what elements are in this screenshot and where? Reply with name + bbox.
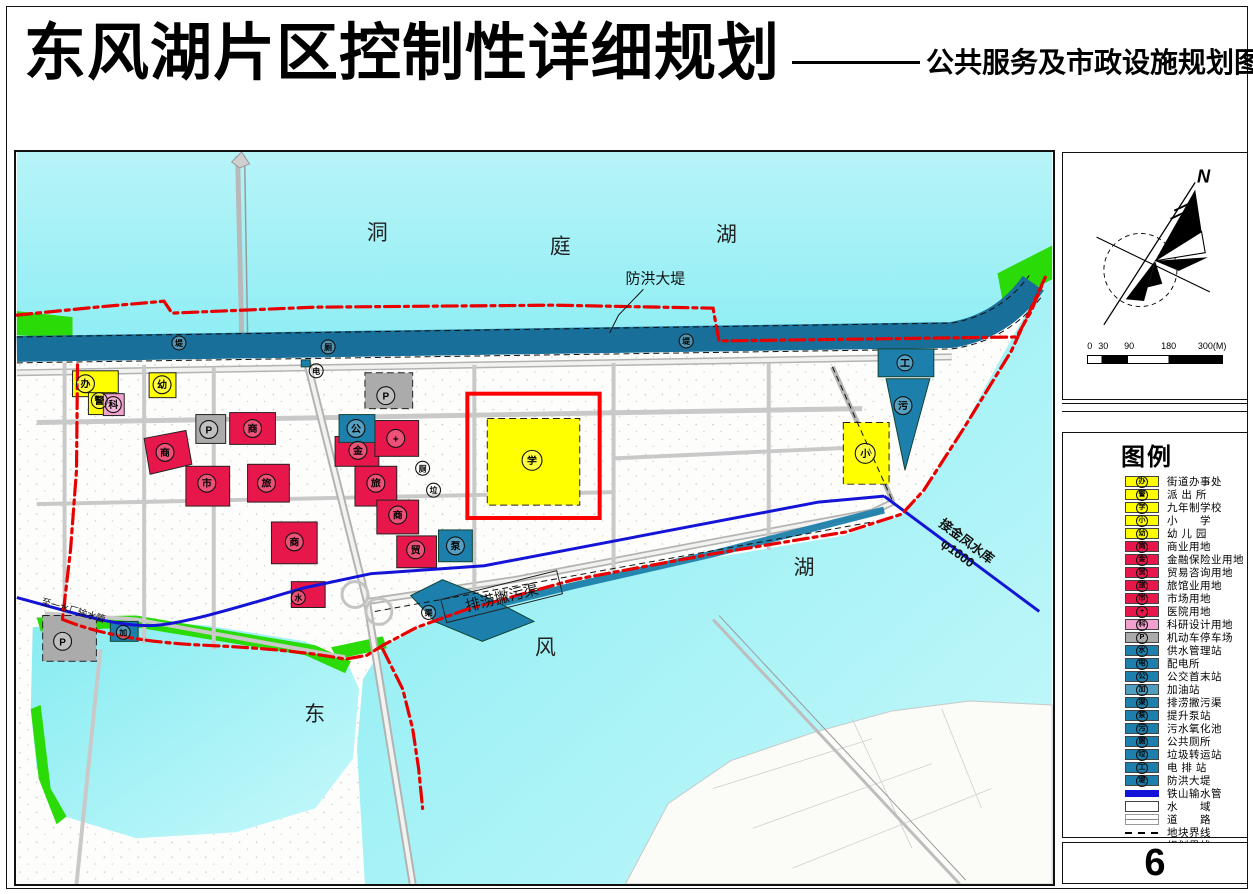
- legend-swatch: 办: [1125, 476, 1159, 487]
- commercial-symbol: 商: [285, 533, 303, 551]
- legend-swatch: P: [1125, 632, 1159, 643]
- legend-symbol-glyph: P: [1136, 632, 1148, 644]
- map-canvas: 办 警 科 幼 P 商 商 市 旅 商 P 公 金 + 旅 厕 垃 商 贸 泵 …: [14, 150, 1055, 886]
- svg-text:湖: 湖: [794, 557, 815, 580]
- water-supply-symbol: 水: [291, 591, 305, 605]
- legend-swatch: 小: [1125, 515, 1159, 526]
- scale-bar-graphic: [1087, 355, 1223, 364]
- research-symbol: 科: [105, 397, 121, 413]
- compass-box: N 0 30 90 180 300(M): [1062, 152, 1248, 400]
- gas-station-symbol: 加: [116, 625, 130, 639]
- street-office-symbol: 办: [77, 375, 95, 393]
- dike-symbol: 堤: [679, 334, 693, 348]
- svg-text:泵: 泵: [450, 540, 460, 552]
- page-number-box: 6: [1062, 842, 1248, 884]
- legend-swatch: 旅: [1125, 580, 1159, 591]
- legend-symbol-glyph: 公: [1136, 671, 1148, 683]
- scale-bar: 0 30 90 180 300(M): [1087, 341, 1223, 375]
- commercial-symbol: 商: [156, 443, 174, 461]
- legend-symbol-glyph: 小: [1136, 515, 1148, 527]
- svg-text:堤: 堤: [175, 338, 184, 348]
- svg-text:学: 学: [527, 454, 537, 467]
- legend-swatch: 贸: [1125, 567, 1159, 578]
- svg-text:P: P: [59, 637, 66, 648]
- legend-swatch: [1125, 814, 1159, 825]
- legend-swatch: 幼: [1125, 528, 1159, 539]
- svg-text:P: P: [382, 392, 389, 403]
- legend-symbol-glyph: 办: [1136, 476, 1148, 488]
- svg-text:电: 电: [312, 366, 320, 376]
- svg-text:商: 商: [160, 446, 170, 459]
- page-subtitle: 公共服务及市政设施规划图: [926, 41, 1253, 81]
- legend-swatch: 公: [1125, 671, 1159, 682]
- legend-swatch: [1125, 788, 1159, 799]
- legend-symbol-glyph: 学: [1136, 502, 1148, 514]
- svg-text:办: 办: [80, 377, 90, 390]
- title-dash-rule: [792, 61, 920, 64]
- legend-swatch: 电: [1125, 658, 1159, 669]
- legend-symbol-glyph: 工: [1136, 762, 1148, 774]
- nine-year-school-symbol: 学: [522, 450, 542, 470]
- svg-text:商: 商: [248, 422, 258, 435]
- svg-text:水: 水: [294, 593, 303, 603]
- legend-swatch: 水: [1125, 645, 1159, 656]
- scale-ticks: 0 30 90 180 300(M): [1087, 341, 1223, 353]
- legend-symbol-glyph: 厕: [1136, 736, 1148, 748]
- svg-text:垃: 垃: [430, 485, 438, 495]
- channel-symbol: 渠: [422, 606, 436, 620]
- legend-swatch: 金: [1125, 554, 1159, 565]
- legend-symbol-glyph: 市: [1136, 593, 1148, 605]
- dike-symbol: 堤: [172, 336, 186, 350]
- svg-text:厕: 厕: [324, 343, 332, 352]
- finance-symbol: 金: [349, 441, 367, 459]
- legend-swatch: 厕: [1125, 736, 1159, 747]
- legend-title: 图例: [1121, 437, 1247, 472]
- legend-swatch: +: [1125, 606, 1159, 617]
- svg-text:污: 污: [898, 399, 908, 412]
- svg-text:工: 工: [900, 358, 910, 369]
- toilet-symbol: 厕: [321, 340, 335, 354]
- legend-symbol-glyph: 科: [1136, 619, 1148, 631]
- legend-swatch: 科: [1125, 619, 1159, 630]
- svg-text:小: 小: [859, 447, 870, 460]
- svg-text:堤: 堤: [682, 336, 691, 346]
- commercial-symbol: 商: [244, 420, 262, 438]
- svg-text:警: 警: [93, 394, 104, 407]
- legend-swatch: 警: [1125, 489, 1159, 500]
- trade-symbol: 贸: [407, 541, 425, 559]
- legend-list: 办 街道办事处 警 派 出 所 学 九年制学校 小 小 学: [1125, 475, 1247, 852]
- parking-symbol: P: [54, 632, 72, 650]
- svg-text:金: 金: [352, 444, 364, 457]
- legend-symbol-glyph: 水: [1136, 645, 1148, 657]
- legend-swatch: 学: [1125, 502, 1159, 513]
- drainage-pump-symbol: 工: [897, 355, 913, 371]
- legend-swatch: 垃: [1125, 749, 1159, 760]
- market-symbol: 市: [198, 474, 216, 492]
- power-symbol: 电: [309, 364, 323, 378]
- legend-swatch: [1125, 801, 1159, 812]
- svg-text:商: 商: [393, 508, 403, 521]
- page-title: 东风湖片区控制性详细规划: [24, 18, 780, 89]
- svg-text:湖: 湖: [716, 224, 737, 247]
- svg-text:贸: 贸: [411, 543, 421, 556]
- right-panel: N 0 30 90 180 300(M) 图例 办 街道办事处: [1060, 150, 1250, 886]
- legend-symbol-glyph: 旅: [1136, 580, 1148, 592]
- lake-dongting-label: 洞: [367, 222, 388, 245]
- svg-text:渠: 渠: [424, 607, 433, 617]
- svg-text:风: 风: [535, 636, 556, 659]
- compass-rose: N: [1071, 159, 1239, 339]
- svg-text:旅: 旅: [261, 477, 271, 490]
- pump-station-symbol: 泵: [446, 537, 464, 555]
- legend-symbol-glyph: 警: [1136, 489, 1148, 501]
- svg-text:庭: 庭: [550, 235, 571, 258]
- toilet-symbol: 厕: [416, 461, 430, 475]
- parking-symbol: P: [377, 387, 395, 405]
- legend-symbol-glyph: 贸: [1136, 567, 1148, 579]
- lake-dongfeng-label: 东: [304, 703, 325, 726]
- police-station-symbol: 警: [91, 393, 107, 409]
- svg-text:+: +: [393, 434, 399, 445]
- svg-text:商: 商: [289, 535, 299, 548]
- legend-swatch: 堤: [1125, 775, 1159, 786]
- legend-symbol-glyph: 泵: [1136, 710, 1148, 722]
- title-block: 东风湖片区控制性详细规划 公共服务及市政设施规划图: [24, 18, 1234, 89]
- plan-map-svg: 办 警 科 幼 P 商 商 市 旅 商 P 公 金 + 旅 厕 垃 商 贸 泵 …: [16, 152, 1053, 884]
- legend-symbol-glyph: 幼: [1136, 528, 1148, 540]
- legend-swatch: 渠: [1125, 697, 1159, 708]
- legend-swatch: 污: [1125, 723, 1159, 734]
- garbage-symbol: 垃: [427, 483, 441, 497]
- parking-symbol: P: [200, 421, 218, 439]
- sewage-symbol: 污: [894, 397, 912, 415]
- svg-text:旅: 旅: [371, 477, 381, 490]
- legend-symbol-glyph: 垃: [1136, 749, 1148, 761]
- svg-text:公: 公: [351, 423, 361, 435]
- legend-swatch: 泵: [1125, 710, 1159, 721]
- primary-school-symbol: 小: [855, 443, 875, 463]
- page-number: 6: [1144, 842, 1165, 885]
- legend-symbol-glyph: 加: [1136, 684, 1148, 696]
- svg-text:市: 市: [202, 477, 212, 490]
- legend-swatch: [1125, 827, 1159, 838]
- commercial-symbol: 商: [389, 506, 407, 524]
- legend-symbol-glyph: 商: [1136, 541, 1148, 553]
- panel-divider: [1062, 403, 1248, 412]
- svg-text:幼: 幼: [157, 378, 167, 391]
- svg-text:厕: 厕: [419, 464, 427, 473]
- legend-symbol-glyph: 渠: [1136, 697, 1148, 709]
- bus-terminal-symbol: 公: [347, 420, 365, 438]
- legend-box: 图例 办 街道办事处 警 派 出 所 学 九年制学校 小: [1062, 432, 1248, 838]
- legend-symbol-glyph: 污: [1136, 723, 1148, 735]
- hotel-symbol: 旅: [258, 474, 276, 492]
- legend-swatch: 商: [1125, 541, 1159, 552]
- hospital-symbol: +: [387, 429, 405, 447]
- lake-dongting: [17, 152, 1052, 339]
- legend-symbol-glyph: 金: [1136, 554, 1148, 566]
- dike-label: 防洪大堤: [626, 270, 686, 287]
- svg-text:科: 科: [108, 398, 118, 411]
- legend-symbol-glyph: 堤: [1136, 775, 1148, 787]
- legend-symbol-glyph: 电: [1136, 658, 1148, 670]
- north-label: N: [1197, 165, 1211, 186]
- svg-text:加: 加: [118, 627, 127, 637]
- hotel-symbol: 旅: [367, 474, 385, 492]
- legend-symbol-glyph: +: [1136, 606, 1148, 618]
- legend-swatch: 工: [1125, 762, 1159, 773]
- kindergarten-symbol: 幼: [153, 376, 171, 394]
- legend-swatch: 市: [1125, 593, 1159, 604]
- svg-text:P: P: [205, 425, 212, 436]
- legend-swatch: 加: [1125, 684, 1159, 695]
